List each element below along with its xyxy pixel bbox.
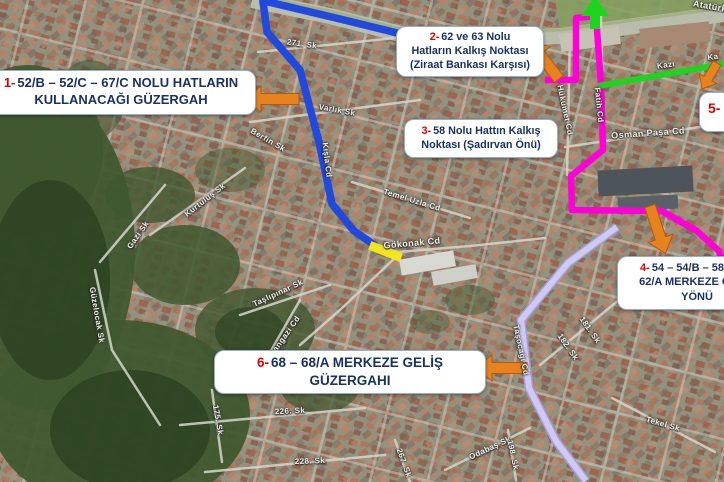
route-1-number: 1- <box>4 75 16 90</box>
callout-text: GÜZERGAHI <box>221 372 479 390</box>
route-5-number: 5- <box>708 100 720 116</box>
route-4-number: 4- <box>640 262 650 274</box>
callout-text: YÖNÜ <box>622 290 724 304</box>
callout-route-5: 5- <box>699 92 724 132</box>
callout-text: KULLANACAĞI GÜZERGAH <box>0 92 247 109</box>
callout-text: 68 – 68/A MERKEZE GELİŞ <box>271 355 443 370</box>
street-label: Ka <box>707 52 719 62</box>
callout-route-3: 3-58 Nolu Hattın Kalkış Noktası (Şadırva… <box>404 119 558 158</box>
callout-text: Noktası (Şadırvan Önü) <box>409 138 553 152</box>
callout-text: Hatların Kalkış Noktası <box>401 44 539 58</box>
callout-text: 62/A MERKEZE GELİŞ <box>622 275 724 289</box>
route-2-number: 2- <box>430 31 440 43</box>
callout-text: 54 – 54/B – 58- 58/A <box>652 262 724 274</box>
route-6-number: 6- <box>257 355 269 370</box>
callout-text: (Ziraat Bankası Karşısı) <box>401 58 539 72</box>
street-label: 226. Sk <box>275 406 306 417</box>
callout-text: 52/B – 52/C – 67/C NOLU HATLARIN <box>17 75 238 90</box>
callout-text: 62 ve 63 Nolu <box>441 31 510 43</box>
callout-route-1: 1-52/B – 52/C – 67/C NOLU HATLARIN KULLA… <box>0 70 256 115</box>
callout-route-6: 6-68 – 68/A MERKEZE GELİŞ GÜZERGAHI <box>214 350 486 394</box>
callout-text: 58 Nolu Hattın Kalkış <box>433 125 540 137</box>
route-3-number: 3- <box>421 125 431 137</box>
callout-route-2: 2-62 ve 63 Nolu Hatların Kalkış Noktası … <box>396 26 544 77</box>
street-label: 228. Sk <box>295 456 326 466</box>
bus-route-map-screenshot[interactable]: Atatürk Blv. Kazı Ka 271. Sk Varlık Sk K… <box>0 0 724 482</box>
callout-route-4: 4-54 – 54/B – 58- 58/A 62/A MERKEZE GELİ… <box>617 256 724 310</box>
